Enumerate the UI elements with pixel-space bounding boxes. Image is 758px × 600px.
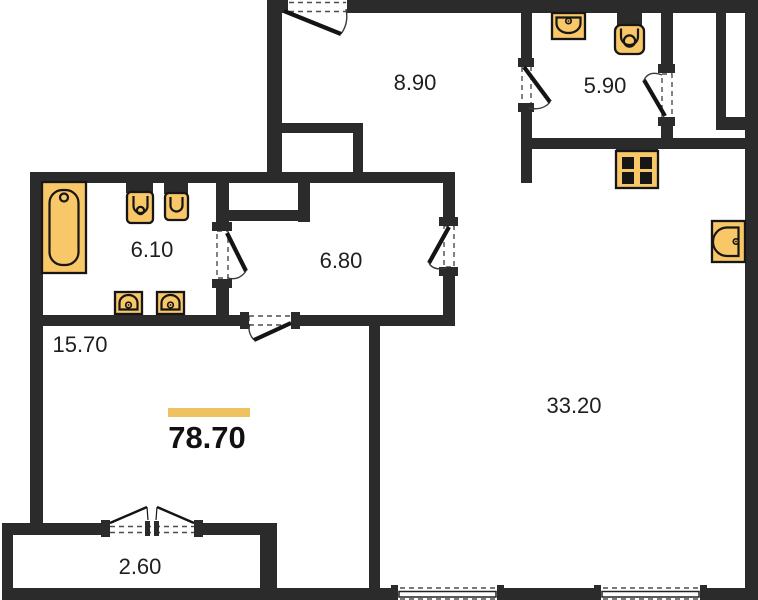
washbasin-drain-dot — [170, 304, 172, 306]
door-leaf — [157, 507, 194, 523]
wall — [30, 172, 455, 183]
window-jamb — [700, 585, 707, 600]
toilet-icon — [615, 13, 644, 54]
door-bathroom2-corridor — [212, 222, 246, 288]
wall — [347, 0, 758, 13]
wall-toilet-icon — [126, 182, 153, 223]
total-area-accent-bar — [168, 408, 250, 417]
sink-icon — [552, 13, 585, 39]
window-2 — [594, 585, 707, 600]
wall — [2, 588, 395, 600]
window-jamb — [594, 585, 601, 600]
door-hall-bathroom — [518, 58, 550, 112]
door-opening — [217, 231, 228, 278]
room-area-entrance-hall: 8.90 — [394, 70, 437, 95]
entrance-door — [284, 0, 347, 34]
door-jamb — [212, 222, 232, 231]
stove-burner — [622, 172, 634, 184]
wall — [278, 123, 363, 133]
window-1 — [391, 585, 504, 600]
total-area-value: 78.70 — [168, 420, 246, 455]
door-leaf-edge — [147, 507, 148, 520]
stove-burner — [622, 157, 634, 169]
stove-burner — [640, 157, 652, 169]
room-area-balcony: 2.60 — [119, 554, 162, 579]
wall — [30, 315, 248, 326]
wall — [716, 117, 745, 130]
room-area-bathroom-2: 6.10 — [131, 237, 174, 262]
washbasin-drain-dot — [128, 304, 130, 306]
wall — [716, 13, 726, 119]
room-area-living-kitchen: 33.20 — [546, 393, 601, 418]
window-jamb — [391, 585, 398, 600]
wall — [267, 0, 282, 183]
door-swing-arc — [228, 271, 246, 279]
window-jamb — [497, 585, 504, 600]
door-swing-arc — [644, 73, 662, 80]
floor-plan: 8.90 5.90 6.10 6.80 15.70 33.20 2.60 78.… — [0, 0, 758, 600]
wall — [2, 523, 107, 535]
wall — [369, 315, 380, 588]
window-frame — [399, 592, 496, 598]
window-frame — [602, 592, 699, 598]
door-mullion — [154, 521, 159, 536]
total-area-block: 78.70 — [168, 408, 250, 455]
wall — [443, 268, 455, 326]
door-jamb — [658, 117, 675, 126]
wall — [500, 588, 598, 600]
door-mullion — [145, 521, 150, 536]
door-jamb — [439, 217, 458, 226]
room-area-corridor: 6.80 — [320, 248, 363, 273]
door-corridor-living — [429, 217, 458, 276]
door-swing-arc — [249, 324, 254, 340]
door-leaf — [110, 507, 147, 523]
door-jamb — [212, 279, 232, 288]
wall — [745, 0, 758, 600]
door-jamb — [291, 312, 300, 329]
door-leaf-edge — [156, 507, 157, 520]
door-leaf — [227, 233, 246, 271]
kitchen-sink-icon — [712, 221, 745, 262]
stove-icon — [616, 144, 658, 188]
door-jamb — [240, 312, 249, 329]
floor-plan-page: 8.90 5.90 6.10 6.80 15.70 33.20 2.60 78.… — [0, 0, 758, 600]
wall — [702, 588, 758, 600]
wall — [229, 210, 310, 221]
toilet-body — [615, 25, 644, 54]
bathtub-icon — [42, 182, 86, 273]
balcony-french-door — [101, 507, 203, 537]
room-area-bathroom: 5.90 — [584, 73, 627, 98]
door-jamb — [518, 103, 534, 112]
room-area-bedroom: 15.70 — [52, 332, 107, 357]
wall — [521, 13, 532, 65]
sink-drain-dot — [568, 20, 570, 22]
door-jamb — [518, 58, 534, 67]
wall — [353, 123, 363, 183]
door-leaf — [284, 11, 341, 34]
stove-burner — [640, 172, 652, 184]
door-corridor-bedroom — [240, 312, 300, 340]
wall — [521, 106, 532, 183]
bidet-body — [165, 193, 188, 220]
washbasin-1-icon — [115, 292, 142, 314]
door-bathroom-closet — [644, 64, 675, 126]
door-jamb — [658, 64, 675, 73]
door-jamb — [101, 520, 110, 537]
washbasin-2-icon — [157, 292, 184, 314]
door-jamb — [194, 520, 203, 537]
bidet-icon — [164, 182, 188, 220]
kitchen-sink-drain-dot — [735, 241, 737, 243]
